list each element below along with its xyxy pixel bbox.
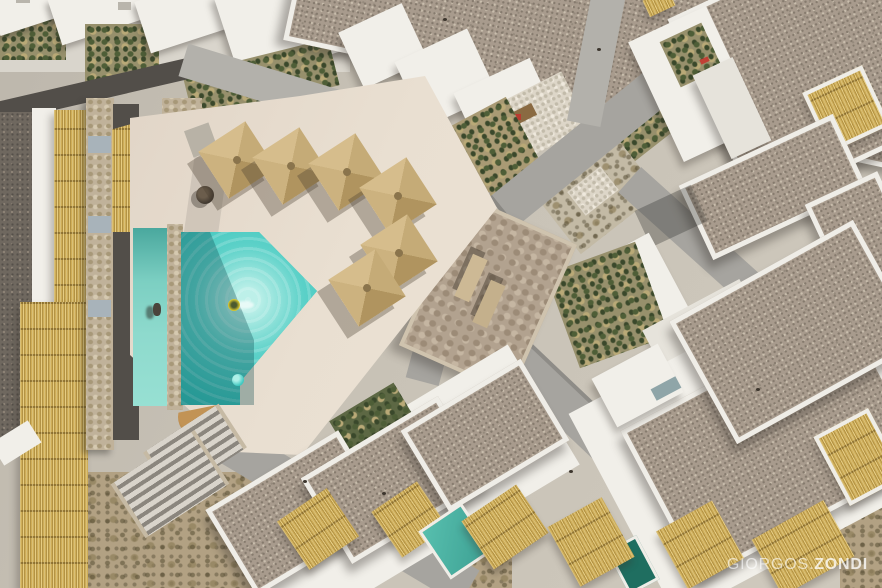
- roof-speck: [597, 48, 601, 51]
- pergola-walkway-left: [54, 110, 90, 310]
- aerial-resort-photo: GIORGOS.ZONDI: [0, 0, 882, 588]
- photographer-watermark: GIORGOS.ZONDI: [727, 556, 868, 574]
- wall-door-opening: [88, 300, 111, 317]
- wall-door-opening: [88, 216, 111, 233]
- roof-speck: [756, 388, 760, 391]
- standing-person: [153, 303, 161, 316]
- roof-speck: [382, 492, 386, 495]
- watermark-suffix: ZONDI: [814, 556, 868, 573]
- ac-unit: [118, 2, 131, 10]
- pool-ball: [232, 374, 244, 386]
- wall-door-opening: [88, 136, 111, 153]
- swimmer-float-hat: [228, 299, 240, 311]
- parapet-left: [32, 108, 56, 308]
- roof-speck: [569, 470, 573, 473]
- lap-pool: [133, 228, 167, 406]
- watermark-prefix: GIORGOS.: [727, 556, 814, 573]
- fire-bowl: [196, 186, 214, 204]
- roof-speck: [303, 480, 307, 483]
- ac-unit: [16, 0, 30, 3]
- roof-speck: [443, 18, 447, 21]
- pool-divider-wall: [167, 224, 183, 410]
